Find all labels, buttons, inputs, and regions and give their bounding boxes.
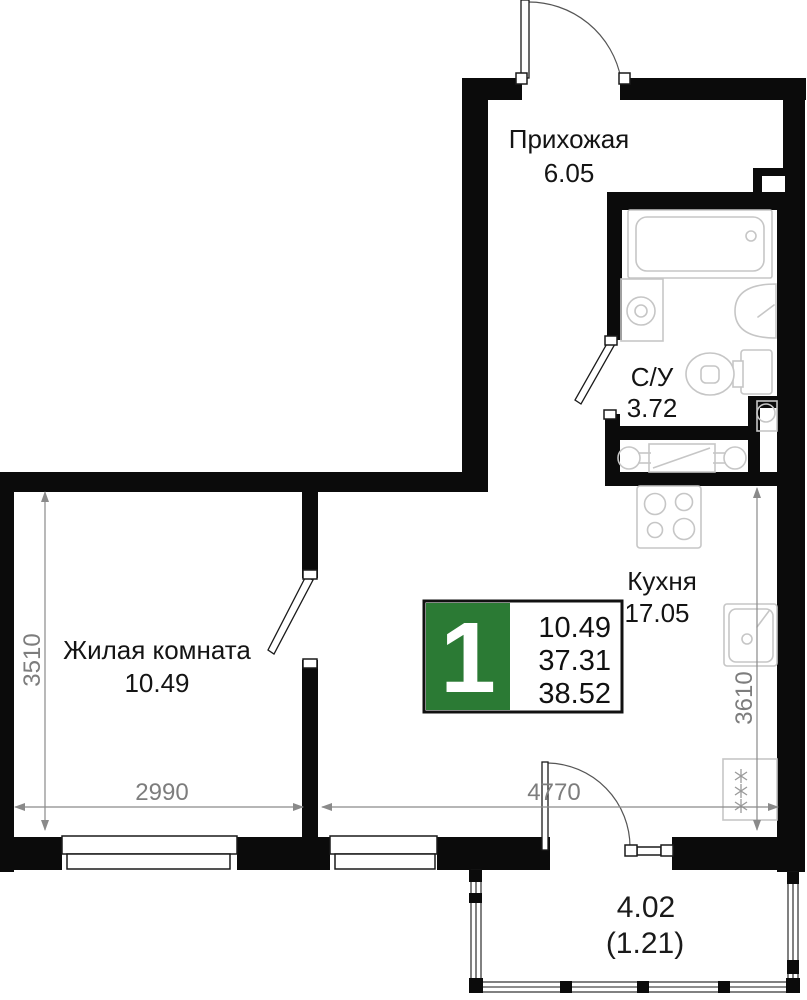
bathtub	[628, 210, 772, 278]
room-label-balcony: 4.02 (1.21)	[606, 891, 684, 960]
living-room-door	[268, 570, 317, 668]
walls	[0, 78, 806, 872]
room-area: 4.02	[617, 891, 675, 924]
badge-rooms-count: 1	[440, 602, 496, 714]
wall-segment	[462, 78, 488, 492]
dimension-label: 3510	[19, 633, 46, 686]
washing-machine	[621, 279, 663, 341]
room-area: 17.05	[624, 598, 689, 628]
room-label-kitchen: Кухня 17.05	[624, 566, 696, 628]
apartment-badge: 1 10.49 37.31 38.52	[424, 601, 622, 714]
wall-segment	[0, 472, 14, 872]
wall-segment	[620, 78, 806, 100]
living-room-window	[62, 836, 237, 869]
wall-segment	[748, 402, 760, 475]
wall-segment	[777, 196, 805, 872]
bathroom-sink	[735, 284, 776, 338]
towel-dryer	[618, 444, 746, 472]
stove	[637, 486, 701, 548]
balcony-mullion	[469, 978, 483, 993]
kitchen-window	[330, 836, 437, 869]
badge-total-area: 38.52	[538, 678, 611, 710]
wall-segment	[607, 192, 622, 340]
room-name: Прихожая	[509, 124, 629, 154]
radiator-asterisk	[735, 769, 747, 783]
radiator-asterisk	[735, 799, 747, 813]
room-area-coef: (1.21)	[606, 927, 684, 960]
wall-segment	[302, 492, 318, 578]
wall-segment	[0, 472, 488, 492]
badge-main-area: 37.31	[538, 645, 611, 677]
radiator-asterisk	[735, 784, 747, 798]
badge-living-area: 10.49	[538, 612, 611, 644]
balcony-mullion	[787, 872, 799, 884]
dimension-label: 4770	[527, 779, 580, 806]
radiator	[723, 759, 777, 820]
wall-segment	[605, 472, 780, 486]
dimension-living-width: 2990	[14, 779, 304, 811]
room-name: Жилая комната	[63, 635, 251, 665]
entrance-door	[516, 0, 630, 84]
balcony-mullion	[469, 893, 482, 903]
room-label-hallway: Прихожая 6.05	[509, 124, 629, 188]
dimension-living-depth: 3510	[19, 491, 49, 831]
kitchen-sink	[724, 604, 777, 666]
wall-segment	[607, 192, 779, 210]
balcony-mullion	[718, 981, 730, 993]
dimension-kitchen-width: 4770	[321, 779, 779, 811]
balcony-mullion	[787, 960, 799, 974]
dimension-label: 2990	[135, 779, 188, 806]
room-name: Кухня	[627, 566, 697, 596]
room-area: 10.49	[124, 668, 189, 698]
room-label-bathroom: С/У 3.72	[627, 362, 678, 423]
toilet	[686, 350, 772, 395]
wall-notch	[762, 176, 785, 192]
bathroom-door	[575, 336, 617, 419]
balcony-mullion	[786, 978, 800, 993]
dimension-label: 3610	[731, 671, 758, 724]
floor-plan: 3510 3610 2990 4770 Прихожая 6.05 С/У 3.…	[0, 0, 807, 1000]
room-area: 3.72	[627, 393, 678, 423]
balcony-mullion	[560, 981, 572, 993]
room-name: С/У	[631, 362, 674, 392]
balcony-mullion	[637, 981, 649, 993]
floor-plan-page: 3510 3610 2990 4770 Прихожая 6.05 С/У 3.…	[0, 0, 807, 1000]
balcony-mullion	[469, 870, 482, 882]
wall-segment	[302, 660, 318, 837]
room-area: 6.05	[544, 158, 595, 188]
wall-segment	[605, 426, 753, 440]
room-label-living-room: Жилая комната 10.49	[63, 635, 251, 698]
